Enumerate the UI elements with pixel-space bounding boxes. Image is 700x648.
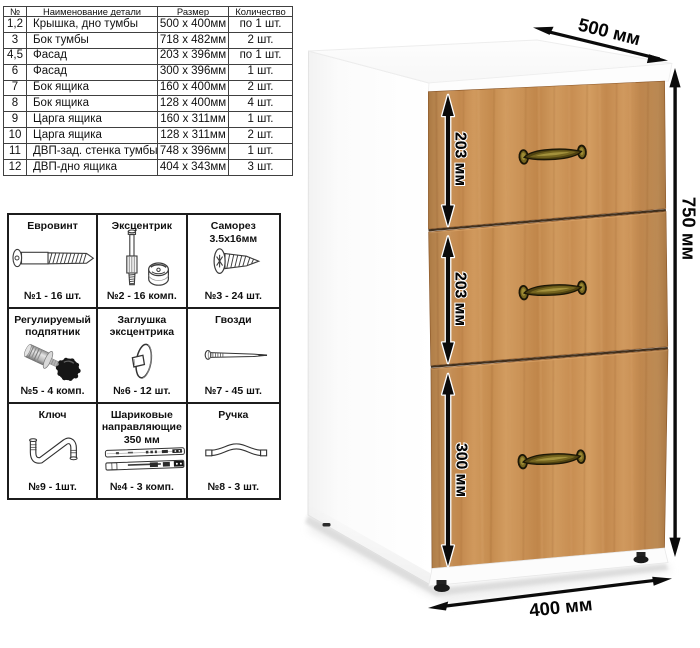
svg-text:500 мм: 500 мм [576,14,643,50]
svg-text:750 мм: 750 мм [679,197,700,260]
svg-text:203 мм: 203 мм [451,132,468,186]
svg-text:300 мм: 300 мм [452,443,469,497]
svg-text:400 мм: 400 мм [528,593,593,621]
svg-text:203 мм: 203 мм [451,272,468,326]
